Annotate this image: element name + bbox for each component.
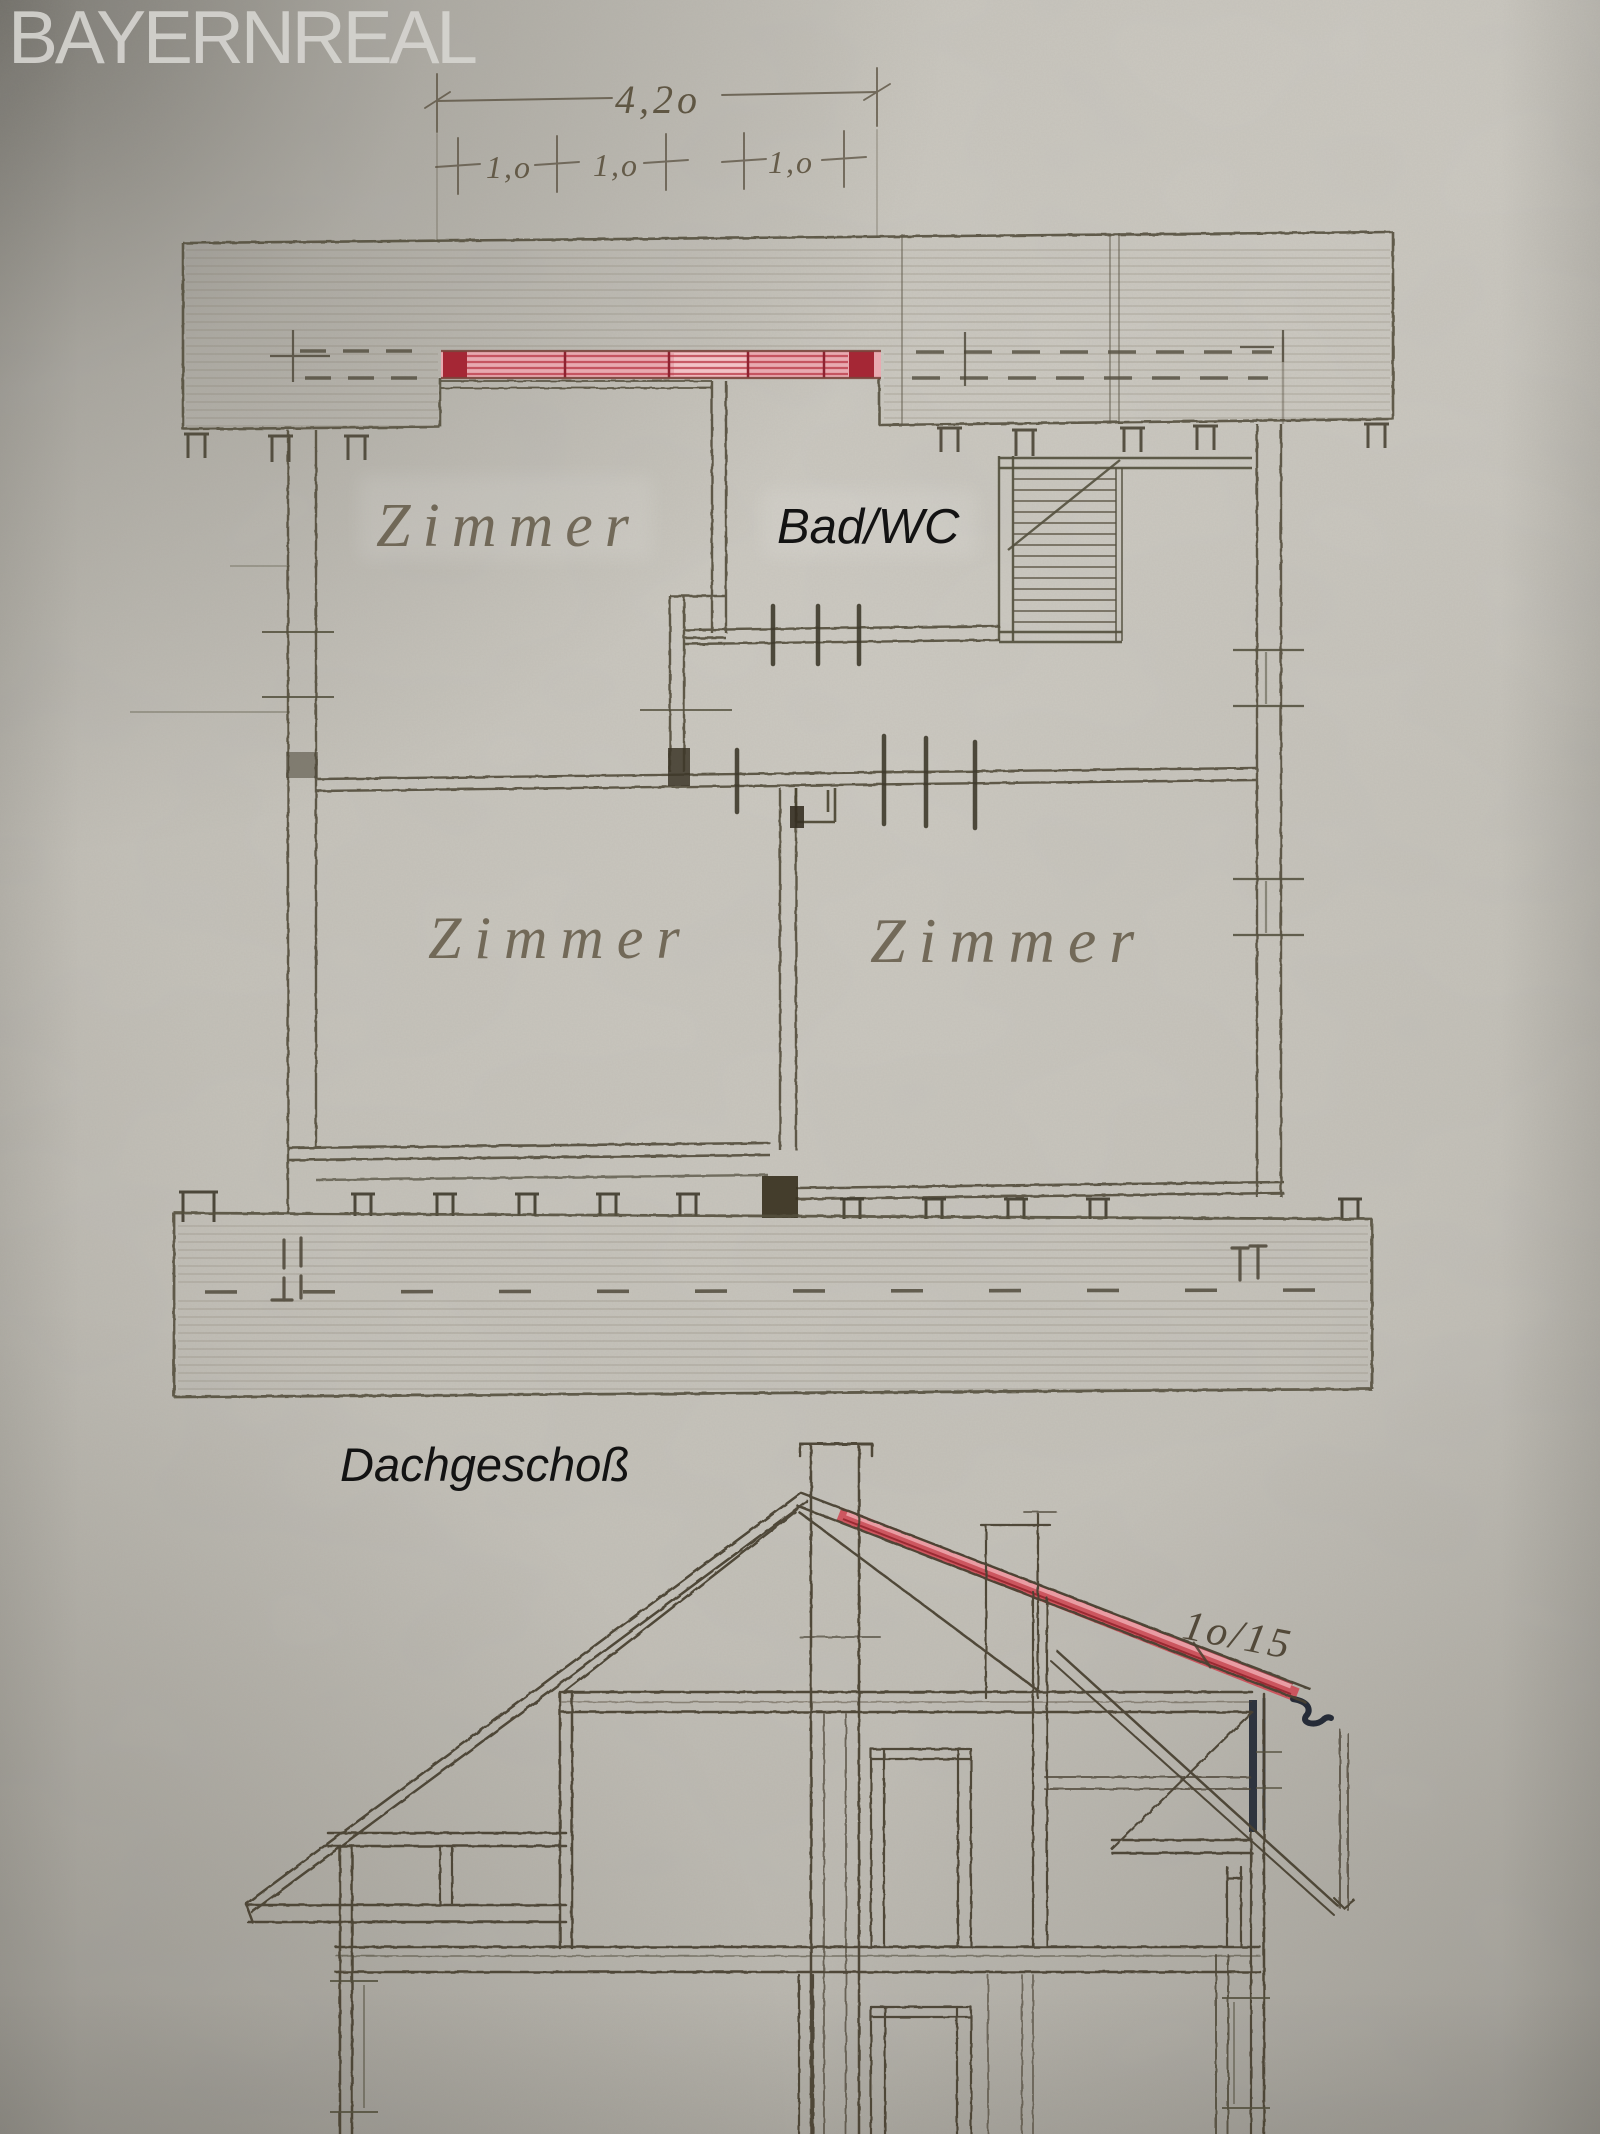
svg-text:Zimmer: Zimmer [376, 492, 641, 560]
svg-text:1,o: 1,o [486, 149, 532, 185]
svg-text:4,2o: 4,2o [615, 77, 701, 122]
svg-text:Bad/WC: Bad/WC [777, 500, 960, 554]
svg-text:1,o: 1,o [768, 144, 814, 180]
svg-text:Zimmer: Zimmer [428, 905, 693, 971]
svg-text:Zimmer: Zimmer [870, 905, 1147, 976]
svg-text:Dachgeschoß: Dachgeschoß [340, 1438, 630, 1491]
svg-text:1,o: 1,o [593, 147, 639, 183]
